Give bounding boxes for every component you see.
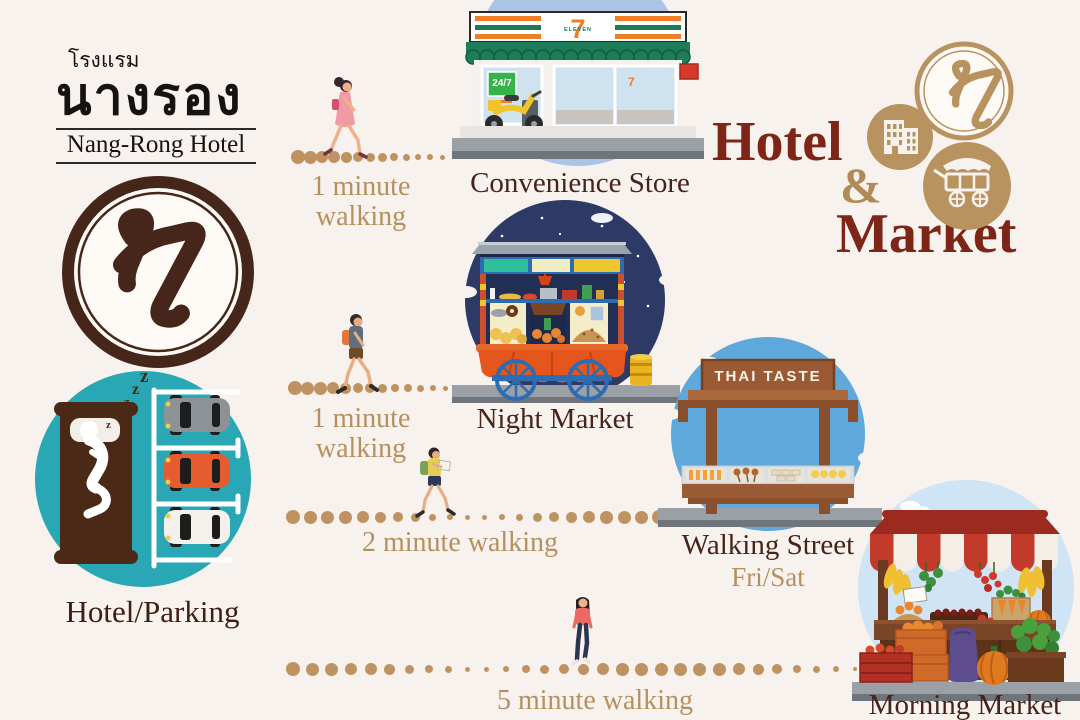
sleep-z: z xyxy=(106,419,111,431)
trail-dot xyxy=(286,510,300,524)
title-hotel: Hotel xyxy=(712,114,843,170)
walking-man-backpack-icon xyxy=(328,312,382,400)
trail-dot xyxy=(540,665,549,674)
trail-dot xyxy=(404,384,412,392)
hotel-parking-illustration: z z z z z xyxy=(32,368,254,590)
sleep-z: z xyxy=(124,394,130,409)
walking-woman-coral-icon xyxy=(557,595,605,669)
trail-dot xyxy=(427,154,433,160)
walking-street-illustration: THAI TASTE xyxy=(658,336,882,558)
trail-dot xyxy=(288,381,302,395)
trail-dot xyxy=(655,663,668,676)
trail-dot xyxy=(674,663,687,676)
trail-dot xyxy=(499,514,505,520)
trail-dot xyxy=(393,512,403,522)
sleep-z: z xyxy=(140,368,149,387)
trail-dot xyxy=(713,663,726,676)
walk-time-4: 5 minute walking xyxy=(430,686,760,716)
open-247-sign: 24/7 xyxy=(492,78,512,89)
trail-dot xyxy=(405,665,414,674)
morning-market-label: Morning Market xyxy=(845,690,1080,720)
trail-dot xyxy=(516,514,523,521)
morning-market-illustration xyxy=(852,476,1080,716)
brand-english-name: Nang-Rong Hotel xyxy=(56,128,256,164)
trail-dot xyxy=(304,511,317,524)
infographic-canvas: โรงแรม นางรอง Nang-Rong Hotel z xyxy=(0,0,1080,720)
trail-dot xyxy=(813,666,820,673)
trail-dot xyxy=(339,511,352,524)
trail-dot xyxy=(566,512,577,523)
trail-dot xyxy=(415,154,421,160)
walk-time-1-line1: 1 minute xyxy=(295,172,427,202)
trail-dot xyxy=(357,511,369,523)
trail-dot xyxy=(618,511,631,524)
trail-dot xyxy=(443,386,448,391)
trail-dot xyxy=(391,384,399,392)
hotel-brand-block: โรงแรม นางรอง Nang-Rong Hotel xyxy=(56,50,256,164)
walking-trail-3 xyxy=(293,507,663,527)
walking-trail-2 xyxy=(295,378,475,398)
trail-dot xyxy=(430,385,436,391)
trail-dot xyxy=(753,664,764,675)
shop-side-sign xyxy=(680,64,698,79)
walk-time-2-line1: 1 minute xyxy=(295,404,427,434)
trail-dot xyxy=(291,150,305,164)
trail-dot xyxy=(306,663,319,676)
trail-dot xyxy=(793,665,801,673)
trail-dot xyxy=(440,155,445,160)
hotel-market-badge xyxy=(864,36,1076,234)
thai-taste-sign: THAI TASTE xyxy=(714,368,821,385)
trail-dot xyxy=(345,663,357,675)
parked-cars-icon xyxy=(164,395,230,547)
night-market-illustration xyxy=(452,196,680,408)
door-seven-logo: 7 xyxy=(628,75,635,89)
convenience-store-label: Convenience Store xyxy=(430,168,730,198)
eleven-logo: ELEVEN xyxy=(564,27,592,33)
trail-dot xyxy=(600,511,613,524)
trail-dot xyxy=(314,382,327,395)
trail-dot xyxy=(616,663,629,676)
brand-thai-name: นางรอง xyxy=(56,71,256,126)
trail-dot xyxy=(403,154,410,161)
trail-dot xyxy=(693,663,706,676)
walking-woman-pink-icon xyxy=(316,76,370,160)
trail-dot xyxy=(417,385,424,392)
walk-time-3: 2 minute walking xyxy=(330,528,590,558)
hotel-monogram-logo xyxy=(58,172,258,372)
trail-dot xyxy=(286,662,300,676)
trail-dot xyxy=(484,667,489,672)
trail-dot xyxy=(533,513,542,522)
trail-dot xyxy=(375,512,386,523)
brand-thai-word: โรงแรม xyxy=(68,50,256,71)
trail-dot xyxy=(325,663,338,676)
walking-man-map-icon xyxy=(407,446,463,524)
trail-dot xyxy=(465,667,470,672)
trail-dot xyxy=(583,511,595,523)
trail-dot xyxy=(321,511,334,524)
walk-time-1: 1 minute walking xyxy=(295,172,427,232)
night-market-label: Night Market xyxy=(420,404,690,434)
trail-dot xyxy=(301,382,314,395)
trail-dot xyxy=(635,663,648,676)
walk-time-1-line2: walking xyxy=(295,202,427,232)
trail-dot xyxy=(445,666,452,673)
trail-dot xyxy=(635,511,648,524)
trail-dot xyxy=(733,663,745,675)
trail-dot xyxy=(465,515,470,520)
trail-dot xyxy=(549,512,559,522)
barrel-icon xyxy=(630,354,652,386)
trail-dot xyxy=(482,515,487,520)
trail-dot xyxy=(833,666,839,672)
seven-eleven-store-icon: 7 ELEVEN 24/7 7 xyxy=(452,12,704,159)
trail-dot xyxy=(503,666,509,672)
trail-dot xyxy=(425,665,433,673)
trail-dot xyxy=(772,664,782,674)
trail-dot xyxy=(384,664,395,675)
trail-dot xyxy=(522,665,530,673)
hotel-parking-label: Hotel/Parking xyxy=(40,594,265,630)
sleep-z: z xyxy=(112,406,118,421)
trail-dot xyxy=(378,153,387,162)
trail-dot xyxy=(365,663,377,675)
trail-dot xyxy=(304,151,317,164)
trail-dot xyxy=(390,153,398,161)
sleep-z: z xyxy=(132,381,139,398)
